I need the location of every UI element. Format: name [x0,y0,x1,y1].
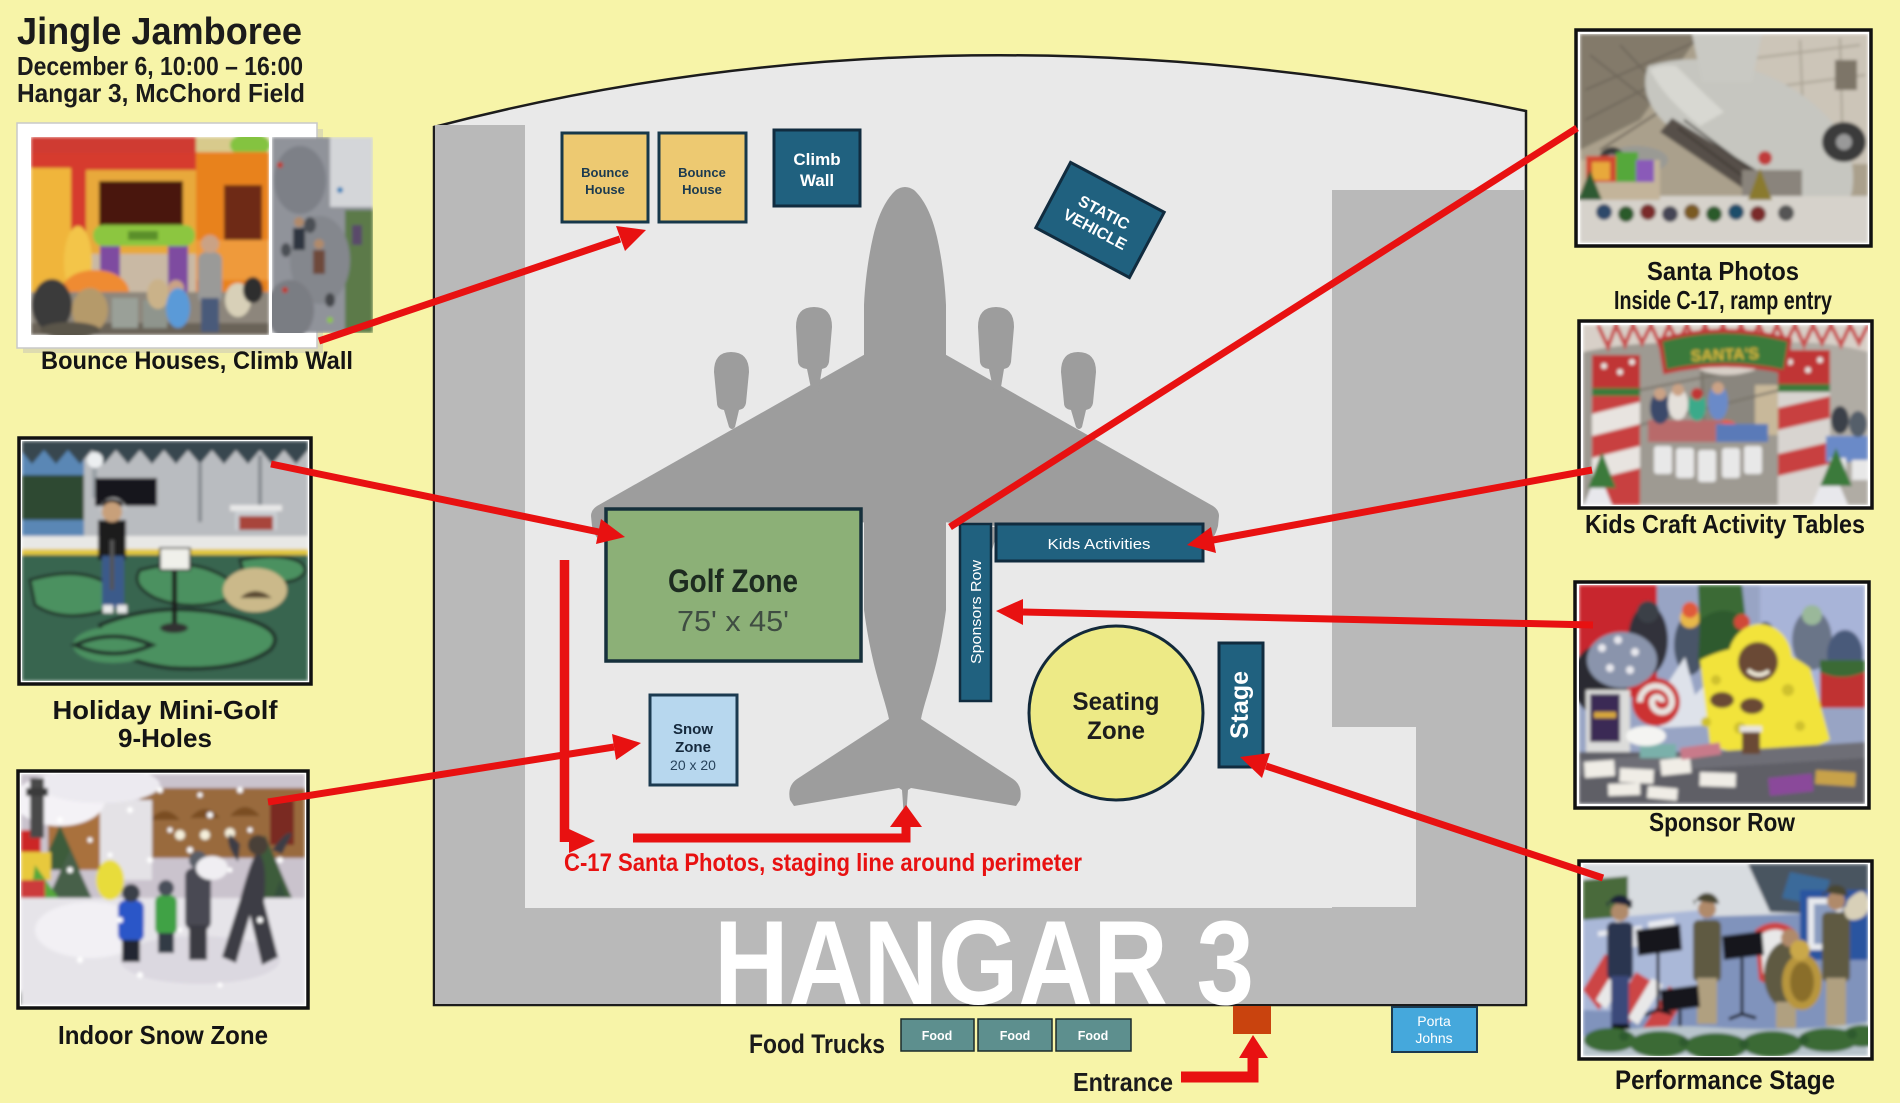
svg-text:Golf Zone: Golf Zone [668,563,798,599]
svg-text:Kids Craft Activity Tables: Kids Craft Activity Tables [1585,509,1865,539]
svg-text:House: House [585,182,625,197]
svg-text:Johns: Johns [1415,1030,1452,1046]
svg-text:Bounce: Bounce [678,165,726,180]
svg-text:Indoor Snow Zone: Indoor Snow Zone [58,1020,268,1050]
svg-text:Food Trucks: Food Trucks [749,1029,885,1059]
svg-text:Climb: Climb [793,150,840,169]
svg-text:Sponsor Row: Sponsor Row [1649,807,1796,837]
svg-text:Bounce: Bounce [581,165,629,180]
svg-text:Snow: Snow [673,721,713,738]
svg-text:HANGAR 3: HANGAR 3 [714,896,1254,1030]
svg-text:SANTA'S: SANTA'S [1690,346,1759,365]
svg-text:Jingle Jamboree: Jingle Jamboree [17,11,302,53]
svg-text:December 6, 10:00 – 16:00: December 6, 10:00 – 16:00 [17,51,303,81]
svg-text:Santa Photos: Santa Photos [1647,256,1799,286]
svg-text:9-Holes: 9-Holes [118,723,212,753]
svg-text:Performance Stage: Performance Stage [1615,1065,1835,1095]
svg-text:75' x 45': 75' x 45' [677,606,789,638]
svg-text:Sponsors Row: Sponsors Row [969,559,985,664]
svg-text:Hangar 3, McChord Field: Hangar 3, McChord Field [17,78,305,108]
svg-text:Wall: Wall [800,171,834,190]
svg-text:Seating: Seating [1073,688,1160,716]
svg-text:House: House [682,182,722,197]
svg-text:Entrance: Entrance [1073,1067,1173,1097]
svg-text:Food: Food [1000,1029,1031,1043]
svg-text:Bounce Houses, Climb Wall: Bounce Houses, Climb Wall [41,347,353,375]
svg-text:Food: Food [922,1029,953,1043]
svg-text:20 x 20: 20 x 20 [670,757,716,773]
svg-text:Porta: Porta [1417,1013,1451,1029]
svg-text:C-17 Santa Photos, staging lin: C-17 Santa Photos, staging line around p… [564,849,1082,877]
svg-text:Kids Activities: Kids Activities [1048,537,1151,553]
svg-text:Zone: Zone [1087,717,1145,745]
svg-text:Holiday Mini-Golf: Holiday Mini-Golf [53,695,278,725]
svg-text:Inside C-17, ramp entry: Inside C-17, ramp entry [1614,285,1832,315]
svg-text:Stage: Stage [1226,671,1254,739]
svg-text:Zone: Zone [675,739,711,756]
svg-text:Food: Food [1078,1029,1109,1043]
